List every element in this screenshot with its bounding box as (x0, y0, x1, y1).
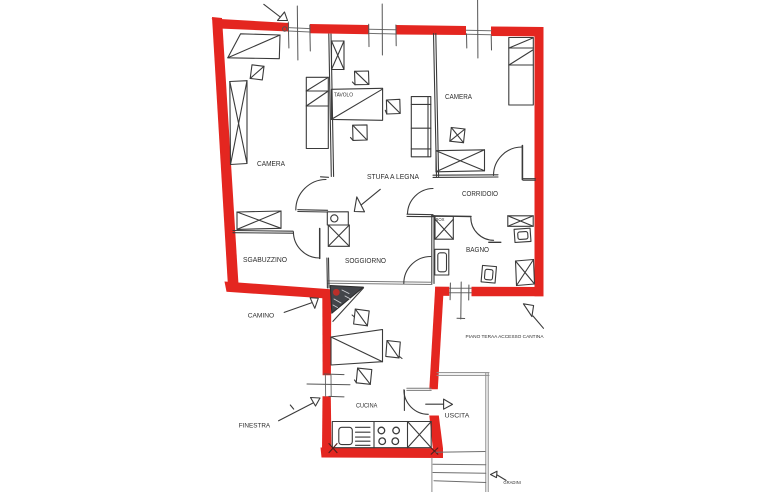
svg-text:BAGNO: BAGNO (466, 245, 489, 254)
svg-text:SOGGIORNO: SOGGIORNO (345, 256, 386, 265)
svg-text:USCITA: USCITA (445, 413, 470, 420)
svg-text:CAMERA: CAMERA (445, 92, 472, 101)
svg-text:BOX: BOX (436, 217, 445, 222)
svg-text:GRADINI: GRADINI (503, 480, 520, 485)
svg-text:PIANO TERAA ACCESSO CANTINA: PIANO TERAA ACCESSO CANTINA (466, 334, 545, 340)
svg-text:SGABUZZINO: SGABUZZINO (243, 255, 287, 264)
svg-text:CAMINO: CAMINO (248, 312, 275, 319)
svg-text:CAMERA: CAMERA (257, 159, 285, 168)
svg-text:CUCINA: CUCINA (356, 404, 377, 410)
svg-text:TAVOLO: TAVOLO (334, 93, 353, 99)
svg-text:FINESTRA: FINESTRA (239, 423, 271, 430)
svg-text:STUFA A LEGNA: STUFA A LEGNA (367, 172, 419, 181)
svg-text:CORRIDOIO: CORRIDOIO (462, 191, 498, 198)
